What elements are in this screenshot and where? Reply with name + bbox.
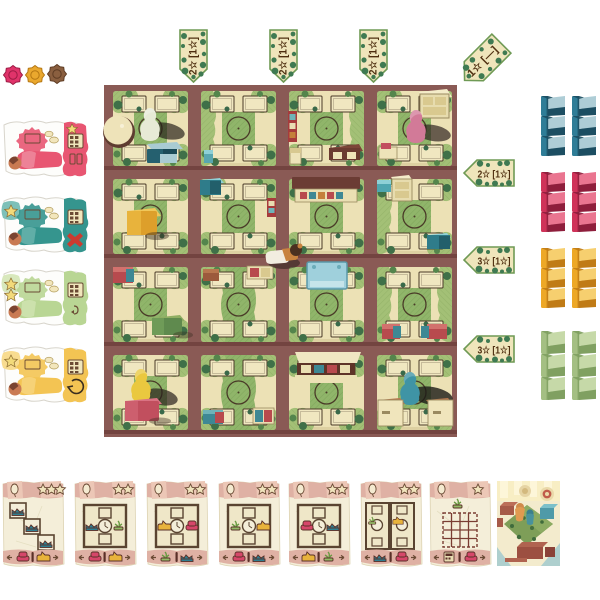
svg-text:2☆ [1☆]: 2☆ [1☆] <box>277 37 289 75</box>
svg-text:3☆ [1☆]: 3☆ [1☆] <box>478 255 511 267</box>
svg-text:2☆ [1☆]: 2☆ [1☆] <box>478 168 511 180</box>
svg-text:2☆ [1☆]: 2☆ [1☆] <box>367 37 379 75</box>
svg-text:2☆ [1☆]: 2☆ [1☆] <box>187 37 199 75</box>
svg-text:3☆ [1☆]: 3☆ [1☆] <box>478 344 511 356</box>
